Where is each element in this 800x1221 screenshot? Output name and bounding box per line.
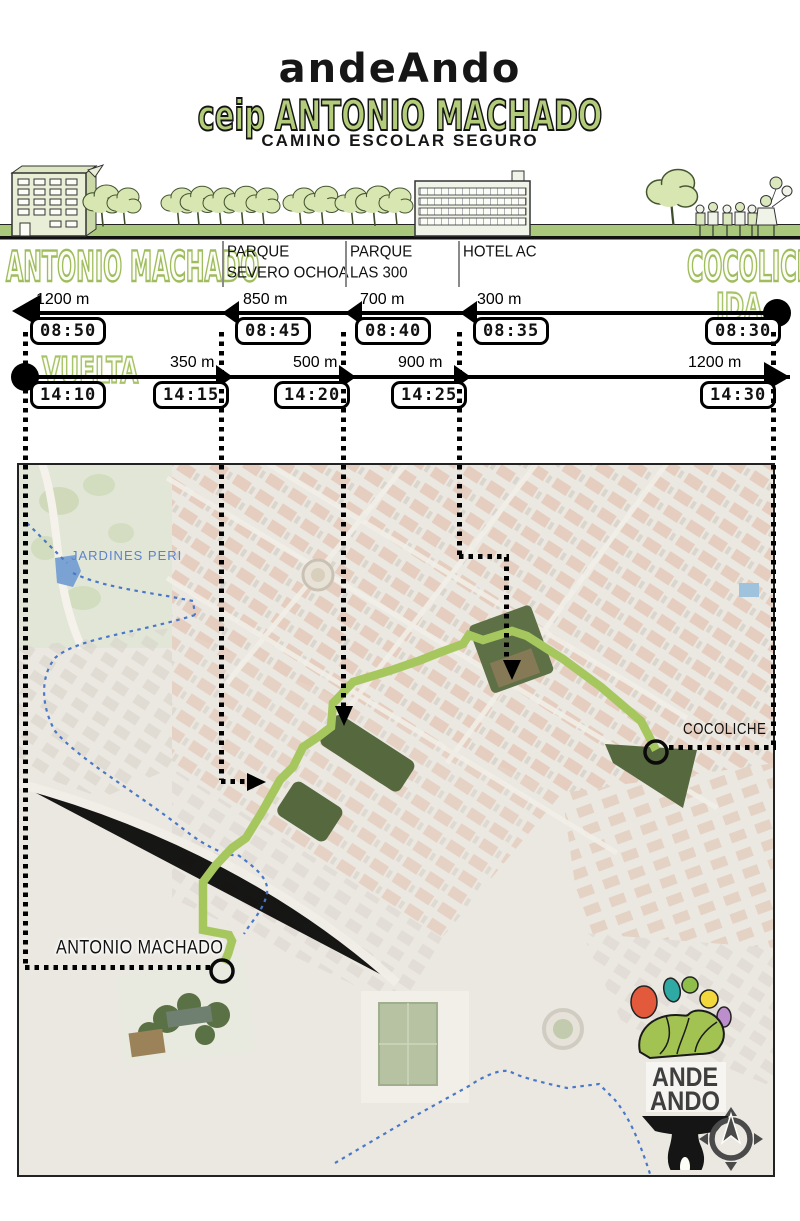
street-trees: [83, 170, 698, 227]
ground-baseline: [0, 236, 800, 240]
brand-title: andeAndo: [0, 46, 800, 92]
connector-cocoliche-vertical: [771, 332, 776, 745]
waypoint-parque-severo-ochoa: PARQUE SEVERO OCHOA: [227, 242, 349, 283]
vuelta-time-1410: 14:10: [30, 381, 106, 409]
connector-cocoliche-horizontal: [669, 745, 776, 750]
map-label-cocoliche: COCOLICHE: [683, 719, 766, 737]
ida-distance-1: 1200 m: [36, 291, 89, 309]
connector-hotel-vertical-1: [457, 332, 462, 556]
band-divider-3: [458, 241, 460, 287]
ida-time-0835: 08:35: [473, 317, 549, 345]
hotel-building-illustration: [415, 171, 530, 236]
connector-las300-vertical: [341, 332, 346, 708]
ida-time-0845: 08:45: [235, 317, 311, 345]
waypoint-parque-las-300: PARQUE LAS 300: [350, 242, 412, 283]
vuelta-distance-3: 900 m: [398, 354, 442, 372]
vuelta-time-1430: 14:30: [700, 381, 776, 409]
connector-hotel-arrow-icon: [503, 660, 521, 680]
poster-page: andeAndo ceip ANTONIO MACHADO CAMINO ESC…: [0, 0, 800, 1221]
ida-distance-3: 700 m: [360, 291, 404, 309]
connector-severo-horizontal: [221, 779, 247, 784]
ida-time-0830: 08:30: [705, 317, 781, 345]
school-door: [20, 223, 30, 236]
vuelta-distance-1: 350 m: [170, 354, 214, 372]
map-stadium: [361, 991, 469, 1103]
connector-severo-arrow-icon: [247, 773, 266, 791]
waypoint-hotel-ac: HOTEL AC: [463, 242, 537, 262]
vuelta-time-1415: 14:15: [153, 381, 229, 409]
strip-destination-label: COCOLICHE: [687, 243, 800, 292]
ida-distance-4: 300 m: [477, 291, 521, 309]
ground-band: [0, 225, 800, 236]
map-pool: [739, 583, 759, 597]
poster-subtitle: CAMINO ESCOLAR SEGURO: [0, 131, 800, 151]
logo-foot: [639, 1011, 724, 1058]
ida-line: [20, 311, 777, 315]
map-label-antonio-machado: ANTONIO MACHADO: [56, 936, 223, 959]
connector-hotel-horizontal: [459, 554, 509, 559]
vuelta-time-1420: 14:20: [274, 381, 350, 409]
map-bullring: [303, 560, 333, 590]
street-profile-illustration: [0, 163, 800, 240]
map-label-jardines-peri: JARDINES PERI: [71, 548, 182, 563]
vuelta-distance-2: 500 m: [293, 354, 337, 372]
connector-origin-vertical: [23, 332, 28, 966]
connector-origin-horizontal: [25, 965, 211, 970]
map-roundabout: [544, 1010, 582, 1048]
vuelta-distance-4: 1200 m: [688, 354, 741, 372]
strip-label-band: ANTONIO MACHADO PARQUE SEVERO OCHOA PARQ…: [0, 240, 800, 290]
vuelta-time-1425: 14:25: [391, 381, 467, 409]
connector-severo-vertical: [219, 332, 224, 780]
band-divider-1: [222, 241, 224, 287]
ida-time-0850: 08:50: [30, 317, 106, 345]
ida-distance-2: 850 m: [243, 291, 287, 309]
vuelta-line: [23, 375, 790, 379]
compass-icon: [699, 1107, 763, 1171]
ida-time-0840: 08:40: [355, 317, 431, 345]
band-divider-2: [345, 241, 347, 287]
connector-las300-arrow-icon: [335, 706, 353, 726]
connector-hotel-vertical-2: [504, 557, 509, 662]
